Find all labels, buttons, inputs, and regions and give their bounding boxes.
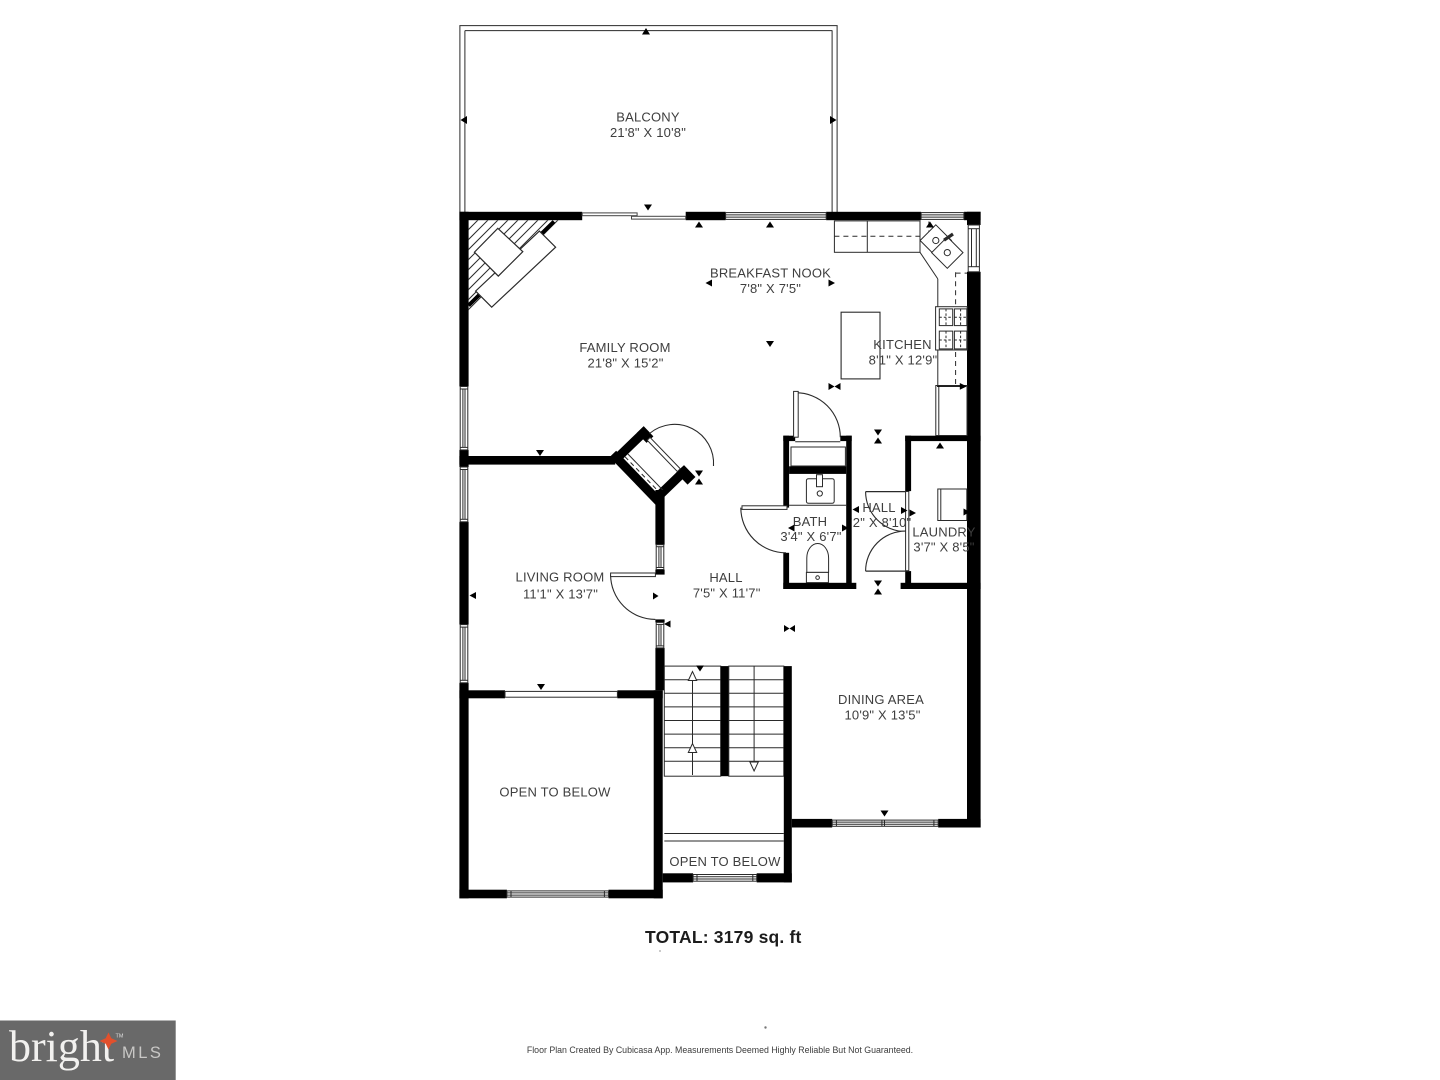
svg-text:Floor Plan Created By Cubicasa: Floor Plan Created By Cubicasa App. Meas… (527, 1045, 913, 1055)
svg-text:BREAKFAST NOOK: BREAKFAST NOOK (710, 266, 831, 281)
svg-text:4'2" X 8'10": 4'2" X 8'10" (843, 515, 912, 530)
svg-text:10'9" X 13'5": 10'9" X 13'5" (844, 708, 920, 723)
svg-text:HALL: HALL (862, 500, 895, 515)
svg-text:MLS: MLS (122, 1044, 163, 1062)
svg-text:LIVING ROOM: LIVING ROOM (516, 570, 605, 585)
svg-text:21'8" X 10'8": 21'8" X 10'8" (610, 125, 686, 140)
svg-text:FAMILY ROOM: FAMILY ROOM (579, 340, 670, 355)
svg-text:LAUNDRY: LAUNDRY (912, 525, 975, 540)
svg-text:BALCONY: BALCONY (616, 110, 680, 125)
svg-text:bright: bright (9, 1022, 114, 1071)
svg-text:KITCHEN: KITCHEN (873, 337, 931, 352)
svg-text:HALL: HALL (709, 570, 742, 585)
svg-text:11'1" X 13'7": 11'1" X 13'7" (523, 587, 598, 602)
svg-text:3'7" X 8'5": 3'7" X 8'5" (913, 540, 974, 555)
svg-text:TM: TM (116, 1034, 124, 1040)
svg-text:OPEN TO BELOW: OPEN TO BELOW (669, 854, 781, 869)
svg-text:3'4" X 6'7": 3'4" X 6'7" (780, 529, 841, 544)
svg-text:7'8" X 7'5": 7'8" X 7'5" (740, 281, 801, 296)
svg-text:DINING AREA: DINING AREA (838, 692, 924, 707)
svg-text:8'1" X 12'9": 8'1" X 12'9" (869, 353, 938, 368)
svg-text:21'8" X 15'2": 21'8" X 15'2" (587, 356, 663, 371)
svg-text:OPEN TO BELOW: OPEN TO BELOW (499, 785, 611, 800)
svg-text:TOTAL: 3179 sq. ft: TOTAL: 3179 sq. ft (645, 927, 802, 947)
svg-text:7'5" X 11'7": 7'5" X 11'7" (693, 586, 761, 601)
svg-text:BATH: BATH (793, 514, 828, 529)
